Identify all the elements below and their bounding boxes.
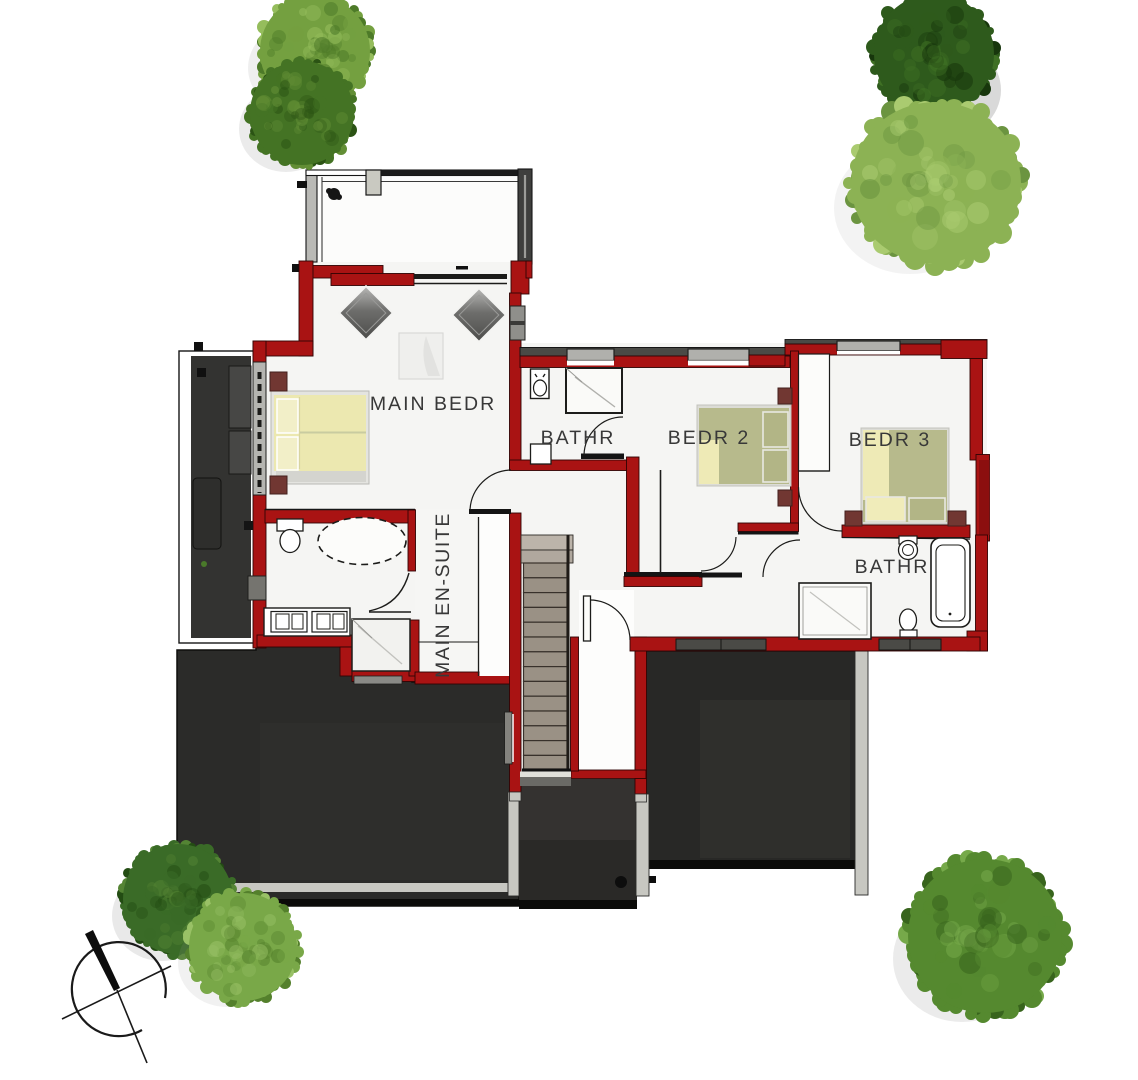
svg-text:BEDR 3: BEDR 3	[849, 429, 931, 451]
svg-text:BATHR: BATHR	[855, 556, 930, 578]
svg-text:BEDR 2: BEDR 2	[668, 427, 750, 449]
svg-text:BATHR: BATHR	[541, 427, 616, 449]
svg-text:MAIN EN-SUITE: MAIN EN-SUITE	[432, 512, 454, 678]
svg-text:MAIN BEDR: MAIN BEDR	[370, 393, 496, 415]
